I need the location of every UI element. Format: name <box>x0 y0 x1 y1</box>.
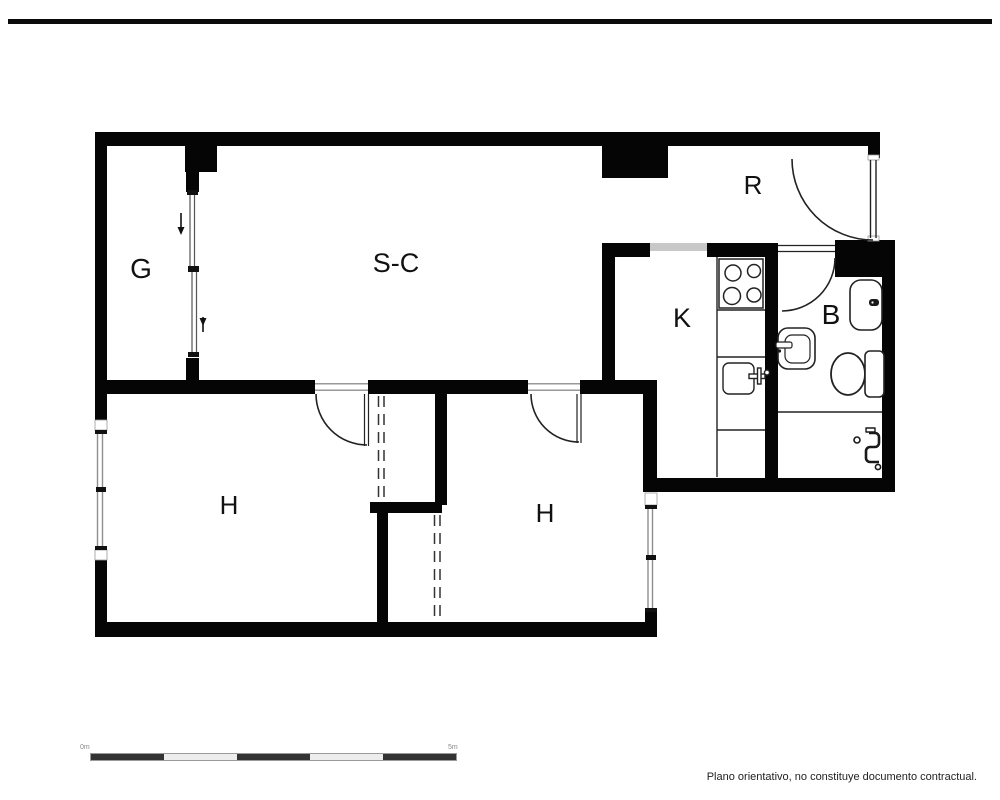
window-left <box>95 430 107 550</box>
kitchen-opening <box>650 243 707 251</box>
floorplan-page: G S-C R K B H H 0m 5m Plano orientativo,… <box>0 0 1000 800</box>
bedroom-left-door <box>315 384 369 446</box>
bedroom-right-door <box>528 384 581 443</box>
room-label-bano: B <box>822 299 841 330</box>
window-right <box>645 505 657 612</box>
scale-segment <box>310 754 383 760</box>
wardrobe-left <box>379 396 385 500</box>
slide-arrow-down <box>178 213 185 235</box>
room-labels: G S-C R K B H H <box>130 170 840 528</box>
room-label-g: G <box>130 253 152 284</box>
scale-segment <box>164 754 237 760</box>
scale-end-label: 5m <box>448 744 458 751</box>
room-label-cocina: K <box>673 303 691 333</box>
stove-icon <box>719 259 763 308</box>
walls <box>95 132 895 637</box>
bath-faucet-icon <box>854 428 881 470</box>
room-label-habitacion-izquierda: H <box>220 490 239 520</box>
scale-segment <box>91 754 164 760</box>
scale-bar <box>90 753 457 761</box>
washbasin-icon <box>776 328 815 369</box>
bathtub-icon <box>778 412 882 470</box>
floorplan-drawing: G S-C R K B H H <box>0 0 1000 800</box>
room-label-habitacion-derecha: H <box>536 498 555 528</box>
entrance-door <box>792 159 876 240</box>
bidet-icon <box>850 280 882 330</box>
disclaimer-text: Plano orientativo, no constituye documen… <box>707 771 977 783</box>
toilet-icon <box>831 351 884 397</box>
room-label-recibidor: R <box>744 170 763 200</box>
kitchen-sink-icon <box>723 363 770 394</box>
scale-segment <box>383 754 456 760</box>
sliding-door <box>178 190 207 357</box>
scale-segment <box>237 754 310 760</box>
scale-start-label: 0m <box>80 744 90 751</box>
room-label-salon-comedor: S-C <box>373 248 420 278</box>
wardrobe-right <box>435 515 441 620</box>
slide-arrow-up <box>200 317 207 332</box>
